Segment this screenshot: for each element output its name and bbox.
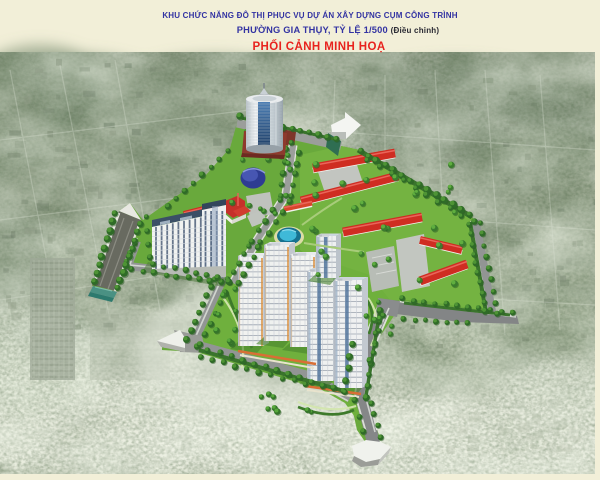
svg-text:PHƯỜNG GIA THỤY, TỶ LỆ 1/500 (: PHƯỜNG GIA THỤY, TỶ LỆ 1/500 (Điều chỉnh… — [237, 24, 440, 35]
svg-text:PHỐI CẢNH MINH HOẠ: PHỐI CẢNH MINH HOẠ — [252, 39, 385, 53]
svg-text:KHU CHỨC NĂNG ĐÔ THỊ PHỤC VỤ D: KHU CHỨC NĂNG ĐÔ THỊ PHỤC VỤ DỰ ÁN XÂY D… — [162, 11, 457, 20]
